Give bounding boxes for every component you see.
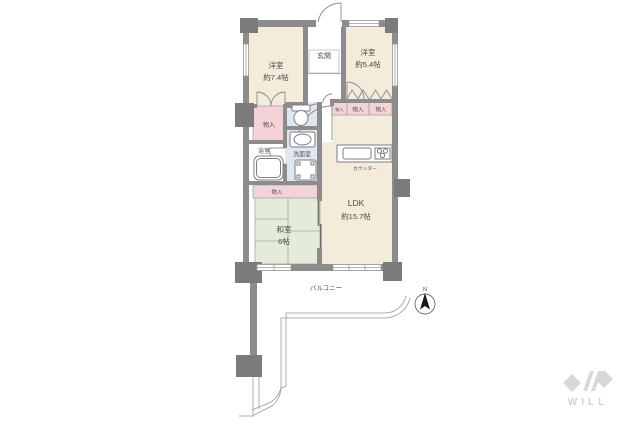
- balcony-side-wall: [250, 271, 257, 361]
- entrance-door-arc: [318, 3, 341, 22]
- compass: N: [415, 287, 435, 314]
- window: [393, 44, 398, 86]
- label-western1: 洋室: [269, 60, 284, 70]
- wall-segment: [249, 140, 287, 144]
- railing-line: [252, 298, 410, 410]
- window: [349, 21, 379, 27]
- label-storage-left: 物入: [263, 121, 275, 129]
- wall-segment: [317, 248, 322, 264]
- wall-segment: [341, 27, 346, 103]
- pillar: [235, 103, 254, 127]
- brand-logo: WILL: [563, 370, 613, 408]
- pillar: [383, 262, 402, 281]
- label-ldk-size: 約15.7帖: [341, 211, 371, 221]
- washing-machine-icon: [295, 160, 316, 180]
- label-western1-size: 約7.4帖: [263, 72, 289, 82]
- label-storage-strip: 物入: [271, 188, 283, 196]
- window: [257, 265, 291, 271]
- label-washroom: 洗面室: [293, 151, 311, 159]
- storage-strip-floor: [253, 185, 320, 198]
- balcony-outline: [239, 296, 410, 416]
- pillar: [394, 179, 410, 197]
- label-washitsu-size: 6帖: [278, 236, 290, 246]
- bathtub-icon: [254, 156, 283, 180]
- label-western2: 洋室: [361, 47, 376, 57]
- wall-segment: [303, 27, 308, 108]
- label-western2-size: 約5.4帖: [355, 59, 381, 69]
- logo-diamond-icon: [563, 374, 581, 392]
- sink-icon: [290, 132, 315, 147]
- pillar: [236, 355, 262, 377]
- kitchen-counter: [337, 145, 392, 162]
- pillar: [240, 18, 258, 33]
- entrance-opening: [316, 20, 342, 27]
- label-balcony: バルコニー: [310, 284, 342, 292]
- label-genkan: 玄関: [317, 51, 331, 60]
- wall-segment: [330, 99, 392, 103]
- wall-segment: [317, 185, 322, 201]
- compass-north-label: N: [423, 287, 427, 293]
- label-bathroom: 浴室: [258, 147, 270, 155]
- floor-plan-drawing: N 玄関 洋室 約7.4帖 洋室 約5.4帖 LDK 約15.7帖 和室 6帖 …: [0, 0, 640, 427]
- logo-text: WILL: [568, 397, 608, 408]
- pillar: [385, 18, 398, 33]
- window: [244, 44, 249, 76]
- label-storage-row: 物入: [352, 106, 364, 114]
- label-storage-row: 物入: [375, 106, 387, 114]
- label-washitsu: 和室: [277, 224, 292, 234]
- wall-segment: [330, 99, 334, 106]
- floor-plan-page: N 玄関 洋室 約7.4帖 洋室 約5.4帖 LDK 約15.7帖 和室 6帖 …: [0, 0, 640, 427]
- window: [333, 265, 381, 271]
- label-storage-row: 物入: [335, 106, 344, 113]
- wall-segment: [317, 102, 322, 185]
- label-ldk: LDK: [348, 198, 365, 208]
- wall-segment: [249, 181, 322, 185]
- label-counter: カウンター: [353, 165, 377, 172]
